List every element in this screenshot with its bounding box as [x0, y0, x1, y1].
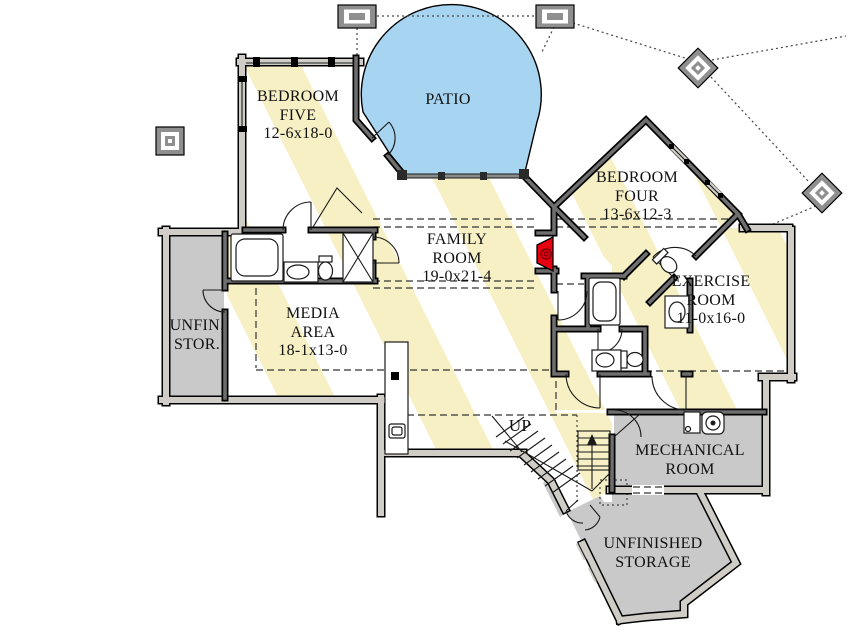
column-icon: [536, 5, 574, 28]
toilet-icon: [319, 256, 333, 280]
mech-room-opening: [632, 485, 664, 495]
column-icon: [156, 127, 184, 155]
column-icon: [802, 173, 842, 213]
shower-icon: [343, 233, 373, 282]
column-icon: [338, 5, 376, 28]
sink-icon: [665, 296, 689, 328]
sink-icon: [592, 350, 621, 371]
unfin-stor-floor: [168, 234, 224, 399]
patio-shape: [361, 5, 541, 176]
sink-icon: [284, 262, 318, 282]
floor-plan-drawing: [0, 0, 850, 637]
bathtub-icon: [589, 278, 620, 325]
floor-plan: BEDROOM FIVE 12-6x18-0 PATIO BEDROOM FOU…: [0, 0, 850, 637]
furnace-icon: [684, 412, 700, 433]
wet-bar: [385, 342, 408, 454]
bar-sink-icon: [389, 424, 405, 438]
toilet-icon: [621, 351, 643, 368]
column-icon: [678, 48, 718, 88]
bathtub-icon: [231, 234, 283, 281]
water-heater-icon: [702, 412, 724, 434]
